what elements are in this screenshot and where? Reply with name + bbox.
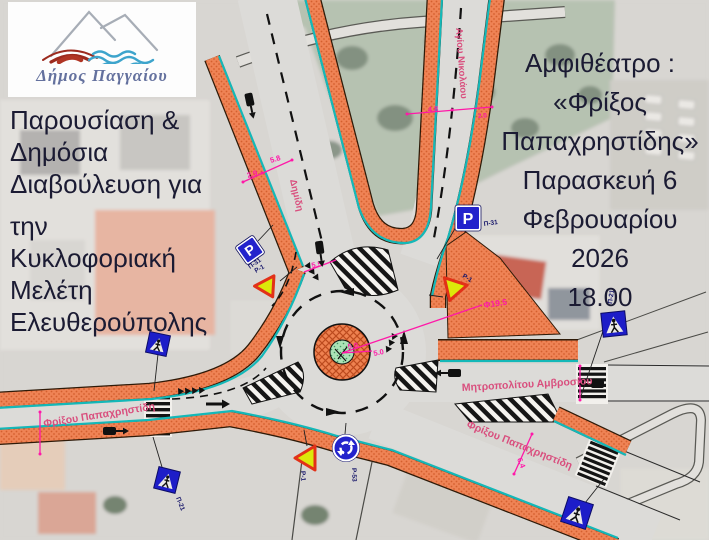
wave-bottom [101,64,143,65]
announcement-text: Παρουσίαση & Δημόσια Διαβούλευση για την… [10,104,215,338]
announcement-line: Δημόσια [10,136,215,168]
crosswalk-sign-southwest [154,467,181,494]
announcement-line: Ελευθερούπολης [10,306,215,338]
announcement-line: Μελέτη [10,274,215,306]
wave-middle [89,57,153,63]
parking-symbol-2: P [463,211,474,228]
presentation-slide: 2.9 5.8 4.8 2.0 5.5 5.0 5.0 Φ19.5 6.4 P … [0,0,709,540]
announcement-line: Παρουσίαση & [10,104,215,136]
event-line: Παρασκευή 6 [492,161,708,200]
municipality-logo: Δήμος Παγγαίου [8,2,196,97]
event-line: Αμφιθέατρο : [492,44,708,83]
event-details-text: Αμφιθέατρο : «Φρίξος Παπαχρηστίδης» Παρα… [492,44,708,317]
dim-circulating-lane: 5.0 [347,341,359,351]
announcement-line: την [10,210,215,242]
mountain-left [51,12,115,56]
roundabout-sign [333,435,360,462]
dim-agnik-width: 4.8 [428,104,439,114]
event-line: «Φρίξος [492,83,708,122]
event-line: 18.00 [492,278,708,317]
dim-agnik-parking: 2.0 [478,112,488,120]
announcement-line: Διαβούλευση για [10,168,215,200]
event-line: Παπαχρηστίδης» [492,122,708,161]
wave-top [93,52,135,57]
event-line: Φεβρουαρίου 2026 [492,200,708,278]
bridge-arc-3 [59,57,81,62]
municipality-name: Δήμος Παγγαίου [8,66,196,86]
roundabout-code: Ρ-53 [350,468,357,482]
announcement-line: Κυκλοφοριακή [10,242,215,274]
yield-south-code: Ρ-1 [299,471,306,482]
logo-graphic [8,2,196,64]
parking-sign-east: P [455,205,481,231]
